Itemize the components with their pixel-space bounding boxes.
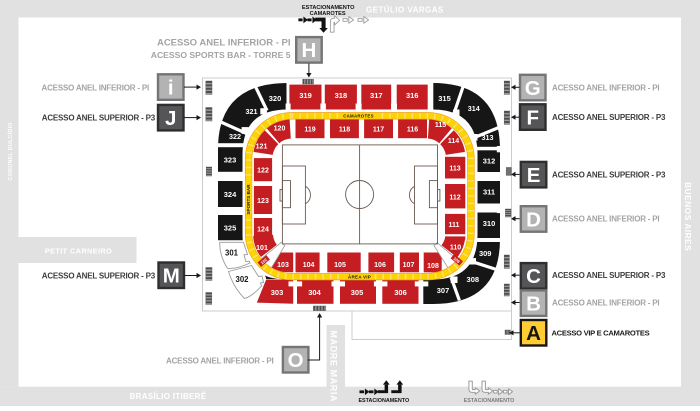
svg-text:316: 316 xyxy=(406,91,419,100)
svg-text:ACESSO ANEL INFERIOR - PI: ACESSO ANEL INFERIOR - PI xyxy=(552,83,659,92)
svg-text:ACESSO ANEL SUPERIOR - P3: ACESSO ANEL SUPERIOR - P3 xyxy=(42,272,156,281)
svg-text:311: 311 xyxy=(483,188,495,197)
svg-text:122: 122 xyxy=(257,168,269,175)
svg-text:104: 104 xyxy=(303,262,315,269)
svg-text:106: 106 xyxy=(374,262,386,269)
svg-text:310: 310 xyxy=(483,219,496,228)
svg-text:118: 118 xyxy=(339,126,350,133)
svg-text:124: 124 xyxy=(257,227,269,234)
svg-text:101: 101 xyxy=(256,245,268,252)
svg-text:116: 116 xyxy=(407,126,418,133)
svg-text:ACESSO ANEL SUPERIOR - P3: ACESSO ANEL SUPERIOR - P3 xyxy=(552,271,666,280)
svg-text:111: 111 xyxy=(449,222,460,229)
svg-text:J: J xyxy=(165,107,176,130)
svg-text:318: 318 xyxy=(335,91,348,100)
svg-text:103: 103 xyxy=(277,262,289,269)
svg-text:307: 307 xyxy=(437,286,450,295)
svg-text:i: i xyxy=(168,76,174,99)
svg-text:ACESSO ANEL SUPERIOR - P3: ACESSO ANEL SUPERIOR - P3 xyxy=(552,170,666,179)
svg-text:121: 121 xyxy=(256,144,268,151)
svg-text:112: 112 xyxy=(449,195,460,202)
svg-text:303: 303 xyxy=(271,288,284,297)
svg-text:ACESSO ANEL SUPERIOR - P3: ACESSO ANEL SUPERIOR - P3 xyxy=(552,113,666,122)
svg-text:M: M xyxy=(163,265,180,288)
svg-text:317: 317 xyxy=(370,91,383,100)
svg-text:108: 108 xyxy=(427,263,439,270)
svg-text:ACESSO SPORTS BAR - TORRE 5: ACESSO SPORTS BAR - TORRE 5 xyxy=(151,50,291,60)
svg-text:G: G xyxy=(525,77,541,100)
svg-text:ACESSO ANEL INFERIOR - PI: ACESSO ANEL INFERIOR - PI xyxy=(552,299,659,308)
svg-text:CAMAROTES: CAMAROTES xyxy=(310,11,346,17)
svg-text:PETIT CARNEIRO: PETIT CARNEIRO xyxy=(45,247,112,256)
svg-text:325: 325 xyxy=(224,224,237,233)
svg-text:120: 120 xyxy=(274,126,286,133)
svg-text:323: 323 xyxy=(224,156,237,165)
svg-text:309: 309 xyxy=(479,249,492,258)
svg-text:ACESSO ANEL INFERIOR - PI: ACESSO ANEL INFERIOR - PI xyxy=(42,83,149,92)
svg-text:ACESSO VIP E CAMAROTES: ACESSO VIP E CAMAROTES xyxy=(552,328,650,337)
svg-text:302: 302 xyxy=(235,275,249,284)
svg-text:117: 117 xyxy=(373,126,384,133)
svg-text:ACESSO ANEL SUPERIOR - P3: ACESSO ANEL SUPERIOR - P3 xyxy=(42,114,156,123)
svg-text:123: 123 xyxy=(257,198,269,205)
svg-text:305: 305 xyxy=(351,288,364,297)
svg-text:GETÚLIO VARGAS: GETÚLIO VARGAS xyxy=(366,6,444,15)
svg-text:319: 319 xyxy=(299,91,312,100)
svg-text:ACESSO ANEL INFERIOR - PI: ACESSO ANEL INFERIOR - PI xyxy=(552,215,659,224)
svg-text:314: 314 xyxy=(468,104,480,113)
svg-text:C: C xyxy=(526,265,541,288)
svg-text:321: 321 xyxy=(246,107,258,116)
svg-text:110: 110 xyxy=(450,245,461,252)
svg-text:BUENOS AIRES: BUENOS AIRES xyxy=(683,182,693,251)
svg-text:ESTACIONAMENTO: ESTACIONAMENTO xyxy=(358,398,409,404)
svg-text:SPORTS BAR: SPORTS BAR xyxy=(246,184,251,215)
svg-text:115: 115 xyxy=(435,122,446,129)
svg-text:CAMAROTES: CAMAROTES xyxy=(343,114,374,119)
svg-text:313: 313 xyxy=(482,133,494,142)
svg-text:MADRE MARIA: MADRE MARIA xyxy=(329,331,339,403)
svg-text:D: D xyxy=(526,208,541,231)
svg-text:306: 306 xyxy=(394,288,407,297)
svg-text:304: 304 xyxy=(308,288,321,297)
svg-text:B: B xyxy=(526,292,541,315)
svg-text:312: 312 xyxy=(483,157,496,166)
svg-text:ESTACIONAMENTO: ESTACIONAMENTO xyxy=(464,398,515,404)
svg-text:301: 301 xyxy=(225,249,239,258)
svg-text:315: 315 xyxy=(438,94,451,103)
svg-text:CORONEL DULCÍDIO: CORONEL DULCÍDIO xyxy=(6,122,14,180)
svg-text:113: 113 xyxy=(449,166,460,173)
svg-text:O: O xyxy=(288,349,304,372)
svg-text:107: 107 xyxy=(403,262,415,269)
svg-text:ACESSO ANEL INFERIOR - PI: ACESSO ANEL INFERIOR - PI xyxy=(157,37,291,48)
svg-text:119: 119 xyxy=(304,126,315,133)
svg-text:F: F xyxy=(526,106,539,129)
svg-text:114: 114 xyxy=(448,138,459,145)
svg-text:105: 105 xyxy=(334,262,346,269)
svg-text:324: 324 xyxy=(224,190,237,199)
svg-text:BRASÍLIO ITIBERÊ: BRASÍLIO ITIBERÊ xyxy=(130,392,207,401)
svg-text:H: H xyxy=(302,39,317,62)
svg-text:E: E xyxy=(527,164,541,187)
svg-text:A: A xyxy=(526,322,541,345)
svg-text:ACESSO ANEL INFERIOR - PI: ACESSO ANEL INFERIOR - PI xyxy=(166,356,273,365)
svg-text:ÁREA VIP: ÁREA VIP xyxy=(348,273,371,279)
svg-text:308: 308 xyxy=(467,275,480,284)
svg-text:320: 320 xyxy=(269,94,282,103)
svg-text:322: 322 xyxy=(229,132,241,141)
